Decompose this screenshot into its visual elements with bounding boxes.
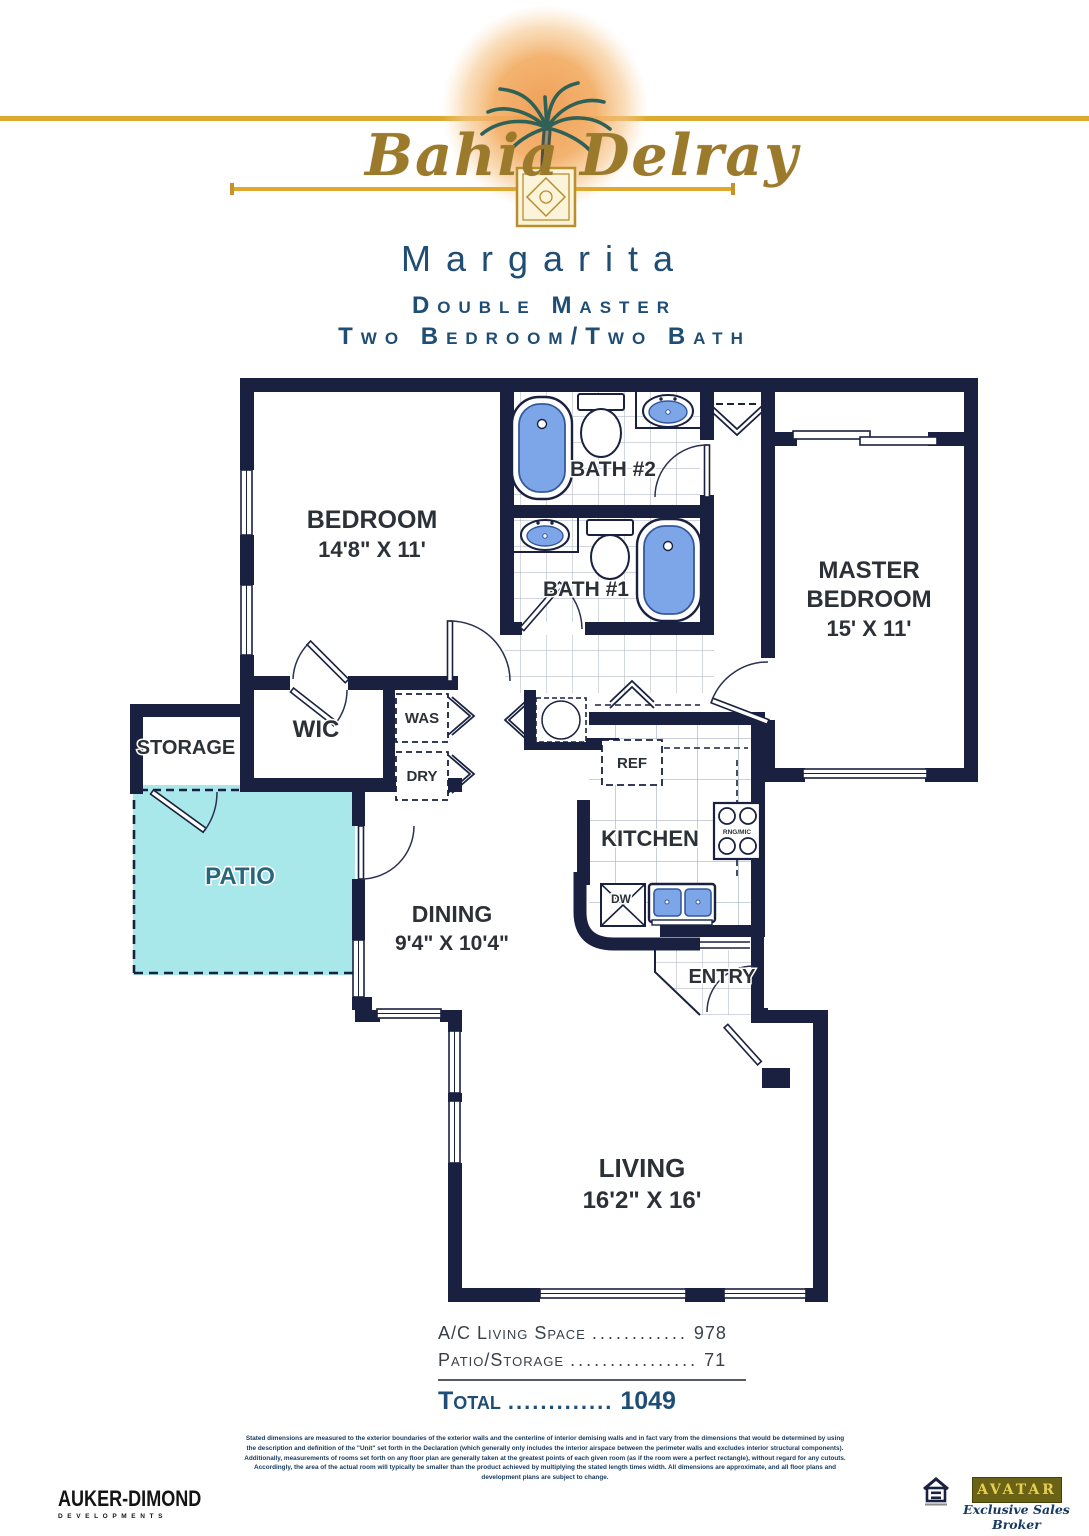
area-label: Patio/Storage — [438, 1350, 564, 1370]
dot-leader: ............. — [508, 1389, 613, 1414]
dot-leader: ................ — [570, 1350, 698, 1370]
patio-door-leaf — [359, 826, 364, 879]
bedroom-door-leaf — [307, 641, 349, 683]
total-label: Total — [438, 1387, 501, 1415]
developer-logo: AUKER-DIMOND DEVELOPMENTS — [58, 1486, 233, 1520]
fridge-label: REF — [617, 755, 647, 772]
floorplan-flyer-page: { "header": { "brand_first": "Bahia", "b… — [0, 0, 1089, 1536]
page-art: BEDROOM 14'8" X 11' BATH #2 BATH #1 MAST… — [0, 0, 1089, 1536]
living-dims: 16'2" X 16' — [583, 1187, 702, 1214]
master-label-2: BEDROOM — [806, 586, 931, 613]
plan-subtitle-1: Double Master — [0, 292, 1089, 320]
area-row-total: Total ............. 1049 — [438, 1379, 746, 1416]
entry-label: ENTRY — [688, 966, 756, 988]
developer-subtitle: DEVELOPMENTS — [58, 1513, 233, 1520]
dining-label: DINING — [412, 901, 493, 927]
wic-label: WIC — [293, 716, 340, 743]
floor-plan: BEDROOM 14'8" X 11' BATH #2 BATH #1 MAST… — [130, 378, 978, 1302]
dishwasher-label: DW — [611, 892, 632, 906]
mech-closet-box — [536, 698, 586, 742]
broker-logo: AVATAR — [972, 1477, 1062, 1503]
toilet-icon — [587, 520, 633, 535]
kitchen-label: KITCHEN — [601, 826, 699, 851]
bath2-door-leaf — [705, 445, 710, 497]
bedroom-dims: 14'8" X 11' — [318, 537, 426, 562]
bath1-label: BATH #1 — [543, 578, 629, 601]
range-micro-label: RNG/MIC — [723, 829, 751, 836]
toilet-icon — [578, 394, 624, 410]
area-value: 71 — [704, 1350, 726, 1370]
dining-dims: 9'4" X 10'4" — [395, 932, 509, 955]
area-summary: A/C Living Space ............ 978 Patio/… — [438, 1320, 746, 1416]
washer-door — [448, 697, 474, 735]
master-dims: 15' X 11' — [826, 616, 911, 641]
patio-label: PATIO — [205, 863, 275, 890]
living-label: LIVING — [599, 1153, 686, 1183]
dot-leader: ............ — [592, 1323, 688, 1343]
hall-door-leaf — [448, 621, 453, 681]
master-label-1: MASTER — [818, 557, 919, 584]
washer-label: WAS — [405, 710, 439, 727]
plan-name-title: Margarita — [0, 238, 1089, 280]
area-value: 978 — [694, 1323, 727, 1343]
legal-disclaimer: Stated dimensions are measured to the ex… — [244, 1434, 846, 1482]
brand-name-first: Bahia — [365, 122, 560, 189]
dryer-label: DRY — [406, 768, 437, 785]
bedroom-label: BEDROOM — [307, 506, 438, 534]
plan-subtitle-2: Two Bedroom/Two Bath — [0, 323, 1089, 351]
broker-tagline: Exclusive Sales Broker — [944, 1502, 1089, 1532]
storage-label: STORAGE — [137, 737, 236, 759]
coat-closet-door — [712, 406, 762, 435]
developer-name: AUKER-DIMOND — [58, 1486, 201, 1512]
total-value: 1049 — [620, 1387, 676, 1415]
front-door-leaf — [724, 1024, 761, 1065]
area-row-living: A/C Living Space ............ 978 — [438, 1320, 746, 1347]
bath2-label: BATH #2 — [570, 458, 656, 481]
area-label: A/C Living Space — [438, 1323, 586, 1343]
brand-banner-art — [0, 5, 1089, 226]
area-row-patio: Patio/Storage ................ 71 — [438, 1347, 746, 1374]
brand-name-second: Delray — [580, 122, 799, 189]
